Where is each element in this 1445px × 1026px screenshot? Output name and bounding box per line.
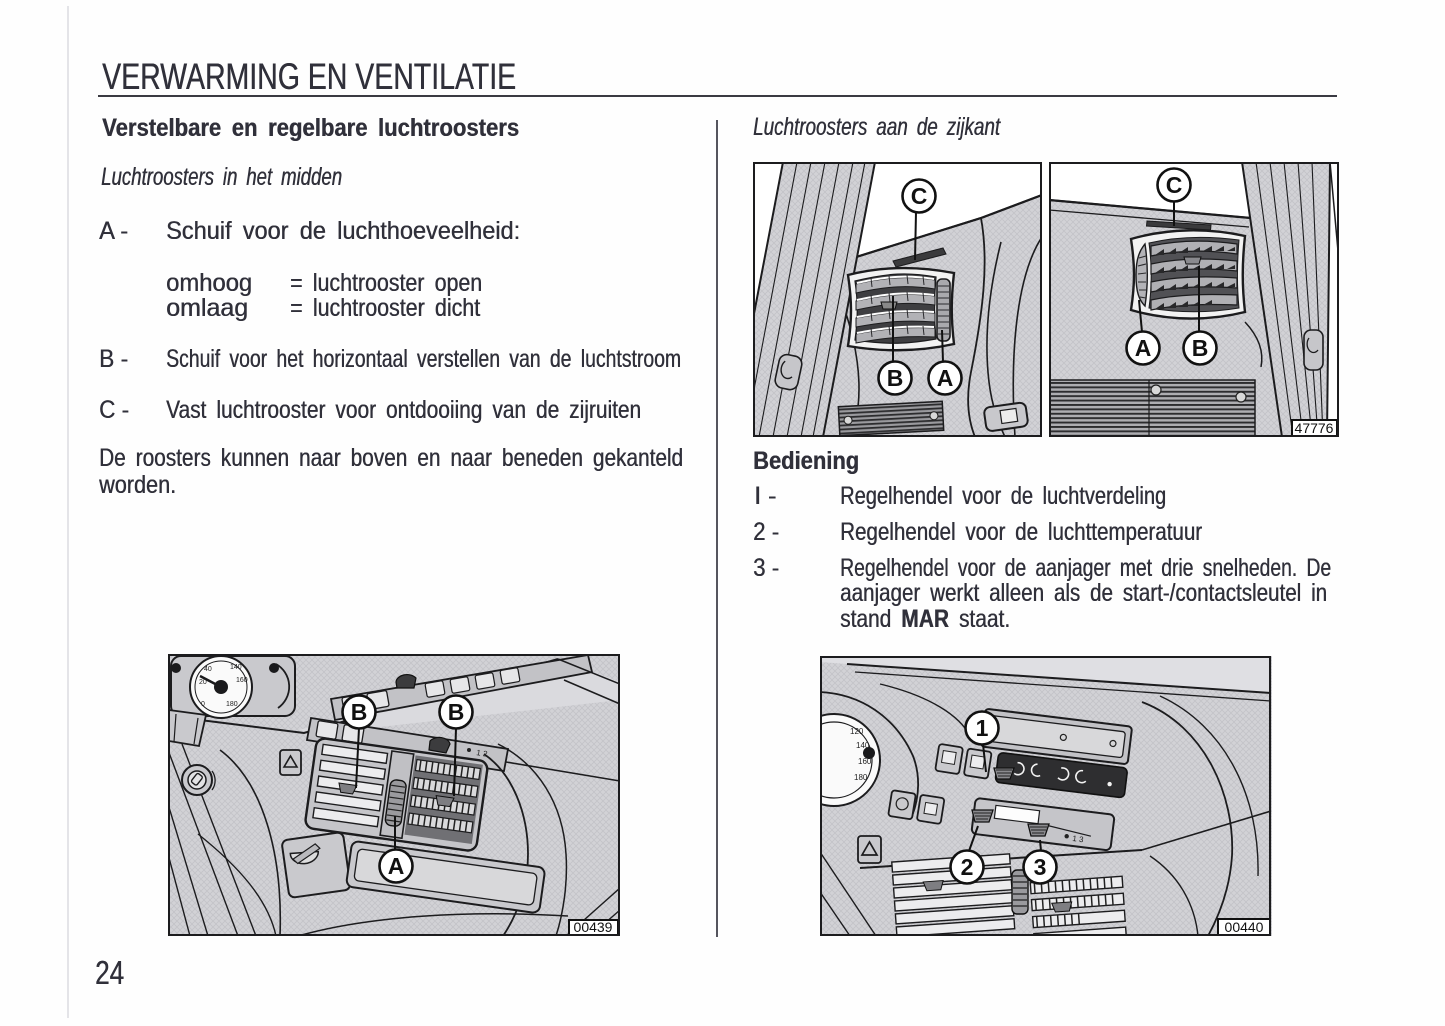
svg-text:A: A (1135, 335, 1152, 361)
svg-text:40: 40 (204, 666, 212, 673)
svg-text:1 2: 1 2 (476, 748, 489, 759)
svg-text:140: 140 (230, 664, 242, 671)
svg-text:B: B (887, 365, 904, 391)
svg-text:1: 1 (976, 715, 989, 741)
svg-text:C: C (911, 183, 928, 209)
svg-text:1 3: 1 3 (1072, 834, 1085, 844)
svg-text:3: 3 (1034, 854, 1047, 880)
svg-text:A: A (937, 365, 954, 391)
svg-text:C: C (1166, 172, 1183, 198)
svg-text:B: B (448, 699, 465, 725)
svg-text:160: 160 (236, 677, 248, 684)
svg-text:B: B (1192, 335, 1209, 361)
svg-text:20: 20 (199, 679, 207, 686)
svg-text:00440: 00440 (1225, 919, 1264, 935)
svg-text:180: 180 (226, 701, 238, 708)
svg-text:180: 180 (854, 773, 868, 782)
svg-text:47776: 47776 (1295, 420, 1334, 436)
svg-text:2: 2 (961, 854, 974, 880)
svg-text:0: 0 (201, 701, 205, 708)
svg-text:00439: 00439 (574, 919, 613, 935)
svg-text:120: 120 (850, 727, 864, 736)
svg-text:B: B (351, 699, 368, 725)
svg-text:A: A (388, 853, 405, 879)
